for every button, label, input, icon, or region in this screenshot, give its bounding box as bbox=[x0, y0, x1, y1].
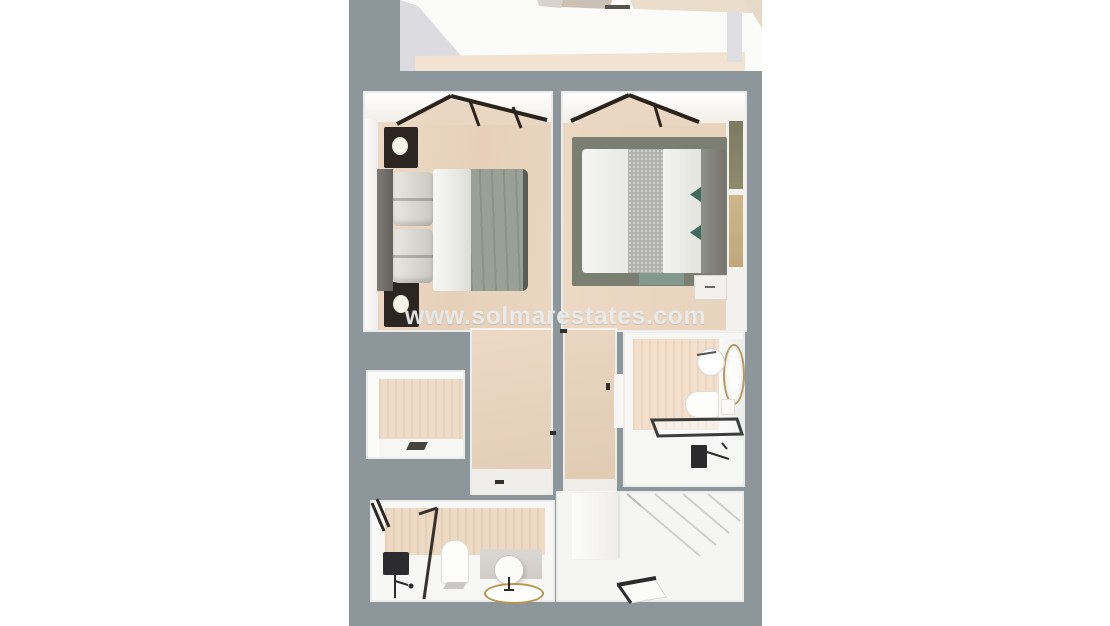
floor-mat bbox=[406, 442, 428, 450]
upper-item-2 bbox=[561, 0, 612, 9]
duvet-fold bbox=[433, 169, 471, 291]
wall-art-bottom bbox=[729, 195, 743, 267]
pillows bbox=[393, 169, 433, 291]
hallway-center bbox=[472, 330, 551, 493]
teal-pillow-accent bbox=[690, 187, 701, 202]
landing-wall-block bbox=[572, 493, 618, 559]
floor-plan-render: www.solmarestates.com bbox=[0, 0, 1110, 626]
bathroom-upper bbox=[625, 333, 743, 485]
oval-mirror bbox=[723, 344, 745, 405]
oval-gold-sink bbox=[484, 583, 544, 604]
pillow bbox=[393, 172, 433, 226]
upper-item-3 bbox=[630, 0, 752, 13]
upper-floor-partial-view bbox=[400, 0, 762, 71]
corridor-right bbox=[565, 330, 615, 497]
nightstand bbox=[694, 275, 727, 300]
closet-back-wall bbox=[379, 379, 463, 439]
headboard bbox=[377, 169, 393, 291]
upper-floor-shapes bbox=[400, 0, 762, 71]
mattress-sheet bbox=[582, 149, 628, 273]
toilet bbox=[685, 391, 719, 418]
toilet bbox=[441, 540, 469, 584]
headboard bbox=[701, 149, 725, 273]
drawer-handle bbox=[705, 286, 715, 288]
storage-closet bbox=[368, 372, 463, 457]
bathroom-lower bbox=[372, 502, 553, 600]
round-mirror bbox=[494, 555, 524, 585]
corridor-door bbox=[614, 374, 623, 428]
patterned-duvet bbox=[628, 149, 663, 273]
footboard bbox=[523, 169, 528, 291]
bath-mat bbox=[443, 582, 467, 589]
blanket bbox=[471, 169, 523, 291]
upper-floor-band bbox=[415, 52, 745, 71]
pillow bbox=[393, 229, 433, 283]
teal-pillow-accent bbox=[690, 225, 701, 240]
bedroom-left bbox=[365, 93, 551, 330]
lamp bbox=[392, 137, 408, 155]
bedroom2-window-wall bbox=[563, 93, 745, 123]
bed-bench bbox=[639, 273, 684, 285]
bed-right bbox=[582, 149, 725, 273]
upper-wall-band bbox=[727, 12, 742, 62]
wall-art-top bbox=[729, 121, 743, 189]
bed-left bbox=[377, 169, 528, 291]
bedroom1-window-wall bbox=[365, 93, 551, 122]
wall-shelf bbox=[721, 399, 735, 415]
upper-item-1 bbox=[537, 0, 563, 8]
pillows bbox=[663, 149, 701, 273]
watermark-text: www.solmarestates.com bbox=[349, 299, 762, 333]
upper-dark-edge bbox=[605, 5, 630, 9]
bedroom-right bbox=[563, 93, 745, 330]
round-sink bbox=[697, 348, 725, 376]
hall-threshold bbox=[472, 469, 551, 493]
nightstand-top bbox=[384, 127, 418, 168]
upper-item-4 bbox=[745, 0, 762, 28]
stair-landing bbox=[558, 493, 742, 600]
